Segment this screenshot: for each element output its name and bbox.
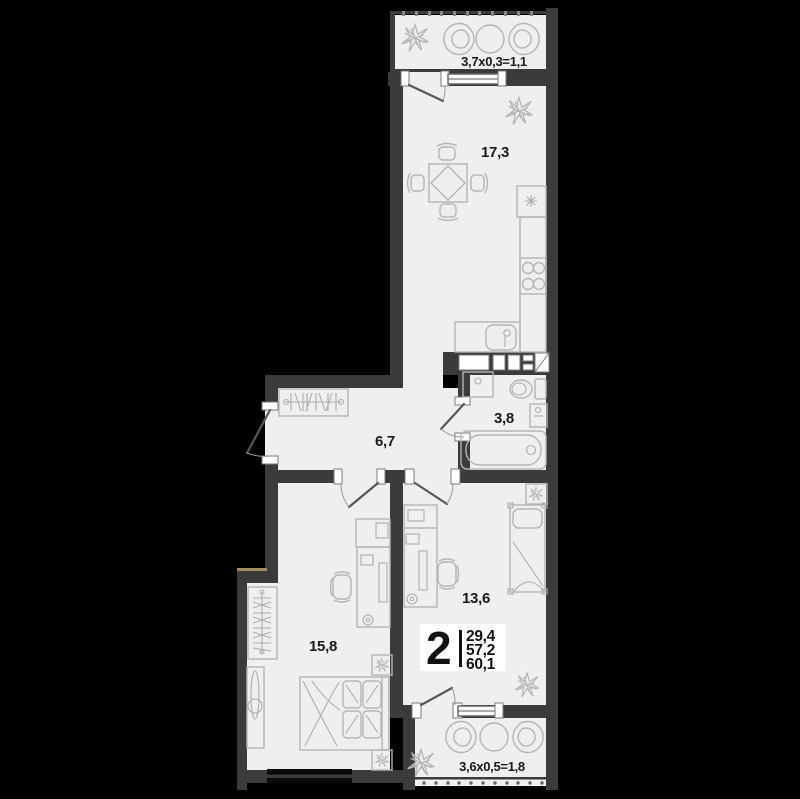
apartment-info-badge: 2 29,4 57,2 60,1: [420, 622, 506, 674]
label-balcony-bottom: 3,6x0,5=1,8: [459, 759, 525, 774]
label-balcony-top: 3,7x0,3=1,1: [461, 54, 527, 69]
label-bathroom: 3,8: [494, 410, 514, 427]
floor-plan: 3,7x0,3=1,1 17,3 3,8 6,7 13,6 15,8 3,6x0…: [0, 0, 800, 799]
rooms-count: 2: [426, 622, 452, 674]
vent-shafts: [459, 353, 549, 372]
floor-plan-page: 3,7x0,3=1,1 17,3 3,8 6,7 13,6 15,8 3,6x0…: [0, 0, 800, 799]
label-hallway: 6,7: [375, 433, 395, 450]
step-accent-line: [237, 568, 267, 571]
floor-kitchen: [403, 86, 546, 352]
floor-passage: [403, 352, 443, 388]
label-kitchen-living: 17,3: [481, 144, 509, 161]
floor-hallway: [278, 388, 458, 470]
label-bedroom-small: 13,6: [462, 590, 490, 607]
label-bedroom-large: 15,8: [309, 638, 337, 655]
area-total: 60,1: [466, 656, 496, 673]
badge-divider: [459, 630, 462, 667]
